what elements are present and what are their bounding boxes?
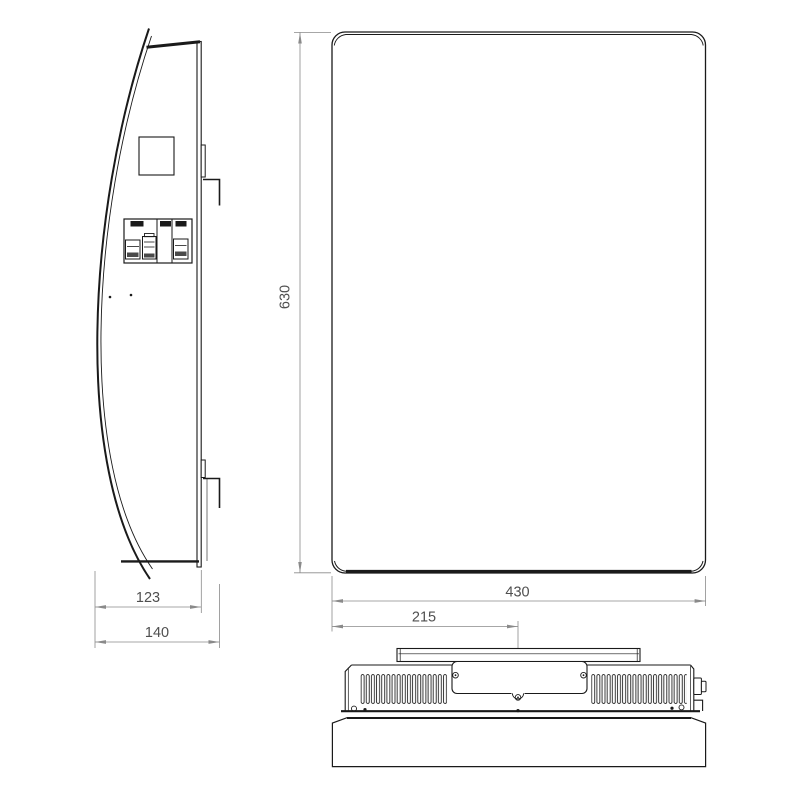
cable-gland-cap <box>701 681 706 691</box>
terminal-cover <box>452 662 587 699</box>
rivet <box>363 708 366 711</box>
wall-bracket-bottom <box>201 460 219 561</box>
rivet-hole <box>679 705 684 710</box>
curved-front-panel <box>97 29 150 580</box>
wall-bracket-top <box>201 145 219 206</box>
cable-gland <box>694 678 706 695</box>
back-panel <box>197 42 201 568</box>
breaker-terminal <box>144 254 155 258</box>
screw-center <box>583 674 585 676</box>
front-panel-strip <box>332 718 705 767</box>
breaker-panel <box>124 219 192 263</box>
display-window <box>139 137 174 175</box>
front-panel-bottom <box>332 718 705 767</box>
bracket-hook <box>203 180 220 206</box>
heater-body-bottom <box>341 662 706 713</box>
bottom-view <box>332 649 706 767</box>
mount-plate-outline <box>397 649 640 662</box>
top-seam-line <box>334 35 703 46</box>
mounting-foot <box>694 700 703 711</box>
mount-plate <box>397 649 640 662</box>
side-dimensions: 123 140 <box>95 570 220 648</box>
rivet <box>670 707 673 710</box>
screw-center <box>455 674 457 676</box>
bracket-hook <box>203 479 220 509</box>
rivet <box>130 294 133 297</box>
breaker-cap <box>160 221 171 227</box>
front-panel-outline <box>332 32 706 573</box>
vent-grille-left <box>361 674 448 704</box>
breaker-terminal <box>127 253 139 258</box>
breaker-cap <box>176 221 187 227</box>
drawing-canvas: 123 140 630 430 215 <box>0 0 800 800</box>
dimension-label-center-offset: 215 <box>412 610 436 626</box>
bracket-tab <box>201 460 205 478</box>
dimension-label-width: 430 <box>505 584 529 600</box>
breaker-cap <box>131 221 144 227</box>
screw-center <box>517 697 519 699</box>
front-view: 630 430 215 <box>278 32 706 666</box>
dimension-label-height: 630 <box>278 285 294 309</box>
cable-gland-body <box>694 678 702 695</box>
rivet <box>109 296 112 299</box>
technical-drawing-page: 123 140 630 430 215 <box>0 0 800 800</box>
bracket-tab <box>201 145 205 177</box>
vent-grille-right <box>591 674 687 704</box>
rivet <box>516 709 519 712</box>
dimension-label-depth-body: 123 <box>136 590 160 606</box>
side-view: 123 140 <box>95 29 220 649</box>
dimension-label-depth-total: 140 <box>145 625 169 641</box>
breaker-terminal <box>175 252 187 257</box>
top-edge <box>147 42 201 47</box>
terminal-cover-outline <box>452 662 587 694</box>
curved-front-panel-inner <box>101 36 153 569</box>
